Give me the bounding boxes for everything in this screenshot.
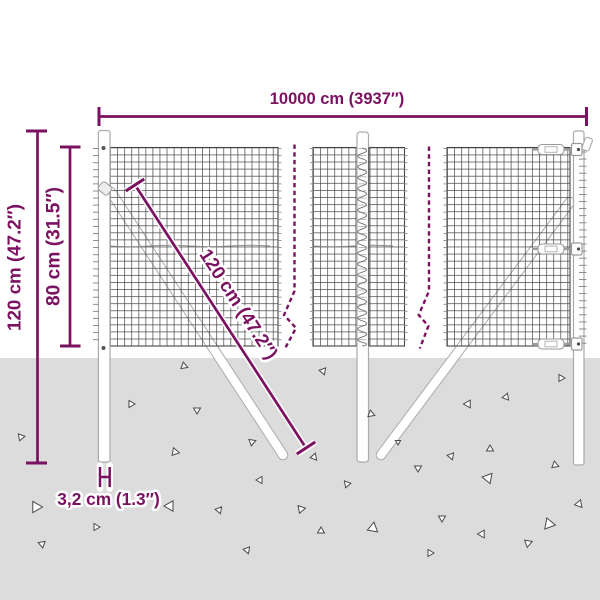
svg-text:10000 cm (3937″): 10000 cm (3937″) (270, 90, 405, 108)
svg-text:80 cm (31.5″): 80 cm (31.5″) (44, 187, 65, 306)
svg-text:120 cm (47.2″): 120 cm (47.2″) (4, 204, 25, 331)
svg-text:3,2 cm (1.3″): 3,2 cm (1.3″) (57, 489, 159, 509)
